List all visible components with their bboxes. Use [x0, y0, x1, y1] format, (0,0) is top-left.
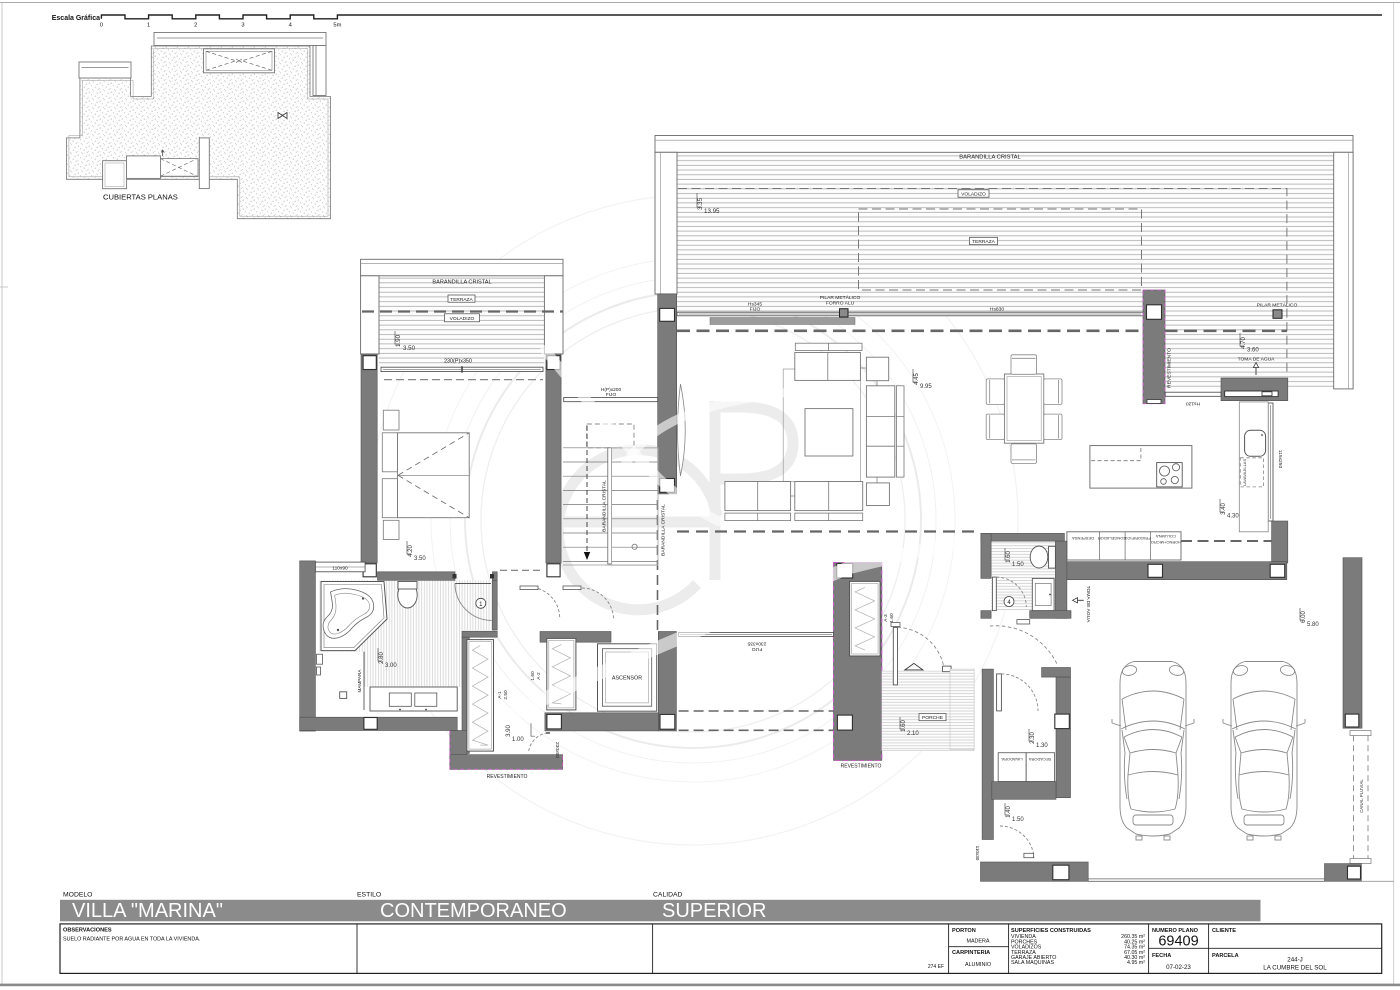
svg-text:3.90: 3.90 [506, 725, 512, 737]
svg-text:1.50: 1.50 [1012, 817, 1024, 823]
svg-text:TOMA DE AGUA: TOMA DE AGUA [1085, 586, 1091, 624]
svg-text:4.45: 4.45 [914, 373, 920, 385]
svg-text:TOMA DE AGUA: TOMA DE AGUA [1238, 357, 1276, 363]
svg-text:110x30: 110x30 [975, 846, 980, 861]
svg-text:244-J: 244-J [1287, 957, 1302, 964]
svg-text:BARANDILLA CRISTAL: BARANDILLA CRISTAL [661, 504, 667, 556]
svg-text:PARCELA: PARCELA [1212, 953, 1239, 959]
svg-text:1.60: 1.60 [901, 720, 907, 732]
svg-text:3.35: 3.35 [697, 197, 704, 210]
svg-text:A-1: A-1 [497, 691, 503, 699]
svg-text:SUPERFICIES CONSTRUIDAS: SUPERFICIES CONSTRUIDAS [1011, 928, 1091, 934]
svg-text:1: 1 [147, 23, 150, 29]
svg-text:1.60: 1.60 [1006, 551, 1012, 563]
svg-text:FRIGORIFICO: FRIGORIFICO [1124, 536, 1150, 541]
svg-text:2.50: 2.50 [503, 690, 509, 700]
svg-text:MODELO: MODELO [63, 892, 92, 899]
svg-text:5m: 5m [333, 23, 341, 29]
svg-text:4.20: 4.20 [408, 545, 414, 557]
svg-text:REVESTIMIENTO: REVESTIMIENTO [1167, 348, 1173, 388]
svg-text:BARANDILLA CRISTAL: BARANDILLA CRISTAL [959, 155, 1021, 161]
svg-text:2.80: 2.80 [379, 652, 385, 664]
svg-text:13.95: 13.95 [704, 208, 720, 215]
svg-text:6.00: 6.00 [1301, 611, 1307, 623]
svg-text:H(P)x200: H(P)x200 [601, 387, 622, 393]
svg-text:Escala Gráfica: Escala Gráfica [52, 15, 100, 22]
svg-text:BARANDILLA CRISTAL: BARANDILLA CRISTAL [432, 280, 491, 286]
svg-text:230x335: 230x335 [747, 641, 766, 647]
svg-text:LAVAVAJILLAS: LAVAVAJILLAS [1242, 459, 1247, 487]
svg-text:A-2: A-2 [536, 672, 542, 680]
svg-text:SECADORA: SECADORA [1028, 757, 1051, 762]
svg-text:Hs120: Hs120 [1186, 401, 1200, 407]
svg-text:CUBIERTAS PLANAS: CUBIERTAS PLANAS [103, 193, 178, 202]
svg-text:ASCENSOR: ASCENSOR [612, 676, 642, 682]
svg-text:LAVADORA: LAVADORA [1001, 757, 1023, 762]
svg-text:FIJO: FIJO [752, 646, 763, 652]
svg-text:07-02-23: 07-02-23 [1166, 964, 1191, 971]
svg-text:2.30: 2.30 [1030, 732, 1036, 744]
svg-text:1.00: 1.00 [512, 737, 524, 743]
svg-text:COLUMNA: COLUMNA [1156, 534, 1176, 539]
svg-text:FIJO: FIJO [750, 307, 761, 313]
svg-text:CONGELADOR: CONGELADOR [1098, 536, 1127, 541]
svg-text:PORCHE: PORCHE [922, 715, 944, 721]
svg-text:OBSERVACIONES: OBSERVACIONES [63, 928, 112, 934]
svg-text:REVESTIMIENTO: REVESTIMIENTO [841, 764, 882, 770]
svg-text:PILAR METÁLICO: PILAR METÁLICO [820, 294, 861, 301]
svg-text:FECHA: FECHA [1152, 953, 1171, 959]
svg-text:115x250: 115x250 [1277, 450, 1283, 469]
svg-text:1.60: 1.60 [530, 671, 536, 681]
svg-text:SUPERIOR: SUPERIOR [662, 900, 766, 922]
svg-text:CALIDAD: CALIDAD [653, 892, 683, 899]
svg-text:69409: 69409 [1158, 934, 1198, 950]
svg-text:3.50: 3.50 [414, 556, 426, 562]
svg-text:1.40: 1.40 [1006, 806, 1012, 818]
svg-text:274 EF: 274 EF [928, 964, 944, 970]
svg-text:3.60: 3.60 [1247, 348, 1259, 354]
svg-text:A-3: A-3 [883, 614, 889, 622]
svg-text:DESPENSA: DESPENSA [1072, 536, 1094, 541]
svg-text:PILAR METÁLICO: PILAR METÁLICO [1257, 302, 1298, 309]
svg-text:Hs830: Hs830 [990, 307, 1004, 313]
svg-text:1.50: 1.50 [1012, 562, 1024, 568]
svg-text:REVESTIMIENTO: REVESTIMIENTO [487, 774, 528, 780]
svg-text:2: 2 [194, 23, 197, 29]
svg-text:2.10: 2.10 [907, 731, 919, 737]
svg-text:VOLADIZO: VOLADIZO [961, 192, 986, 198]
svg-text:9.95: 9.95 [920, 384, 932, 390]
svg-text:PORTON: PORTON [952, 928, 976, 934]
svg-text:4.95 m²: 4.95 m² [1127, 960, 1145, 966]
svg-text:MAMPARA: MAMPARA [357, 669, 362, 693]
svg-text:LA CUMBRE DEL SOL: LA CUMBRE DEL SOL [1263, 965, 1327, 972]
svg-text:ESTILO: ESTILO [357, 892, 381, 899]
svg-text:SALA MAQUINAS: SALA MAQUINAS [1011, 960, 1054, 966]
svg-text:MADERA: MADERA [966, 939, 989, 945]
svg-text:ALUMINIO: ALUMINIO [965, 962, 991, 968]
svg-text:CONTEMPORANEO: CONTEMPORANEO [380, 900, 567, 922]
svg-text:230(P)x350: 230(P)x350 [444, 359, 472, 365]
svg-text:CANAL PLUVIAL: CANAL PLUVIAL [1359, 779, 1364, 813]
svg-text:1.30: 1.30 [1036, 743, 1048, 749]
svg-text:SUELO RADIANTE POR AGUA EN TOD: SUELO RADIANTE POR AGUA EN TODA LA VIVIE… [63, 937, 200, 943]
svg-text:1.60: 1.60 [889, 613, 895, 623]
svg-text:3.00: 3.00 [385, 663, 397, 669]
svg-text:3: 3 [241, 23, 244, 29]
svg-text:1.90: 1.90 [395, 334, 402, 347]
svg-text:110x90: 110x90 [332, 566, 348, 572]
svg-text:5.80: 5.80 [1307, 622, 1319, 628]
svg-text:FORRO ALU: FORRO ALU [826, 301, 855, 307]
svg-text:CLIENTE: CLIENTE [1212, 928, 1236, 934]
svg-text:4.30: 4.30 [1227, 514, 1239, 520]
svg-text:CARPINTERIA: CARPINTERIA [952, 950, 990, 956]
svg-text:TERRAZA: TERRAZA [972, 239, 996, 245]
svg-text:VILLA "MARINA": VILLA "MARINA" [72, 900, 223, 922]
svg-text:TERRAZA: TERRAZA [450, 297, 473, 303]
svg-text:BARANDILLA CRISTAL: BARANDILLA CRISTAL [602, 480, 608, 532]
svg-text:VOLADIZO: VOLADIZO [450, 316, 475, 322]
svg-text:0: 0 [100, 23, 103, 29]
svg-text:3.50: 3.50 [403, 345, 416, 352]
svg-text:230x50: 230x50 [554, 742, 560, 758]
svg-text:HORNO+MICRO: HORNO+MICRO [1151, 540, 1182, 545]
